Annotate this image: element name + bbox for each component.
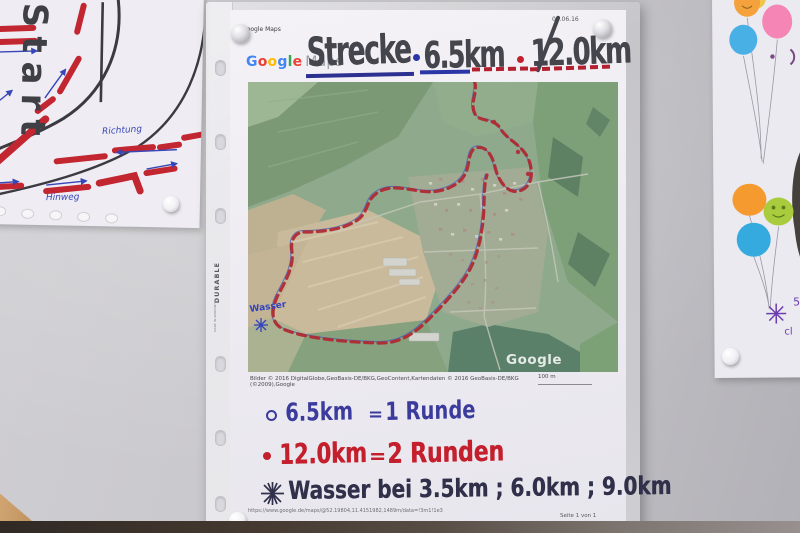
note2-equals: =	[369, 444, 386, 468]
map-page: Google Maps 06.06.16 GoogleMaps Strecke …	[230, 10, 626, 522]
satellite-map: Wasser Google	[248, 82, 618, 372]
green-balloon	[763, 197, 793, 225]
map-attribution: Bilder © 2016 DigitalGlobe,GeoBasis-DE/B…	[250, 376, 550, 388]
hinweg-label: Hinweg	[46, 193, 80, 204]
note2-distance: 12.0km	[279, 436, 367, 471]
scale-bar	[538, 384, 592, 385]
punch-hole	[215, 356, 226, 372]
bottom-shelf-edge	[0, 521, 800, 533]
scale-label: 100 m	[538, 374, 556, 380]
track-sketch-drawing: Start Richtung Hinweg	[0, 0, 204, 228]
balloon-strings	[743, 18, 779, 310]
punch-hole	[215, 496, 226, 512]
punch-hole	[215, 134, 226, 150]
start-line	[101, 2, 103, 102]
dark-shape-edge	[792, 143, 800, 271]
note1-bullet-ring-icon	[266, 410, 277, 421]
note1-equals: =	[368, 404, 383, 425]
orange-balloon-mid	[732, 184, 766, 216]
right-poster-balloons: 5 cl	[712, 0, 800, 378]
made-in-germany-text: MADE IN GERMANY	[213, 303, 217, 332]
durable-brand-text: DURABLE	[213, 262, 221, 303]
title-underline-red-dashes	[472, 67, 528, 72]
title-red-dot	[517, 56, 524, 63]
left-sleeve-holes	[0, 207, 118, 223]
left-poster-track-sketch: Start Richtung Hinweg	[0, 0, 204, 228]
partial-handwriting-a: 5	[793, 295, 800, 308]
route-title: Strecke	[306, 26, 411, 76]
partial-handwriting-b: cl	[784, 326, 792, 337]
start-label: Start	[12, 2, 55, 144]
pushpin-right-poster	[722, 348, 739, 365]
purple-dot	[770, 54, 774, 58]
pink-balloon	[762, 4, 792, 38]
punch-hole	[215, 430, 226, 446]
note3-water-stops: Wasser bei 3.5km ; 6.0km ; 9.0km	[288, 471, 672, 505]
richtung-label: Richtung	[102, 124, 143, 137]
durable-brand-label: DURABLE MADE IN GERMANY	[213, 262, 227, 358]
footer-url: https://www.google.de/maps/@52.19804,11.…	[248, 508, 443, 514]
note1-distance: 6.5km	[285, 396, 353, 427]
pushpin-top-right	[593, 19, 612, 38]
purple-curve	[790, 49, 794, 64]
blue-balloon-mid	[737, 223, 771, 257]
note3-star-icon	[259, 480, 286, 507]
note2-bullet-dot-icon	[263, 452, 271, 460]
balloon-drawing: 5 cl	[712, 0, 800, 378]
footer-page-number: Seite 1 von 1	[560, 513, 596, 519]
note2-description: 2 Runden	[387, 434, 504, 470]
logo-google-text: Google	[246, 54, 302, 70]
pushpin-left-poster	[163, 196, 179, 212]
punch-hole	[215, 208, 226, 224]
note1-description: 1 Runde	[385, 395, 476, 426]
title-blue-dot	[413, 54, 420, 61]
photo-of-route-board: Start Richtung Hinweg DURABLE MADE IN GE…	[0, 0, 800, 533]
punch-hole	[215, 60, 226, 76]
pushpin-top-left	[231, 24, 250, 43]
blue-balloon-top	[729, 25, 757, 55]
